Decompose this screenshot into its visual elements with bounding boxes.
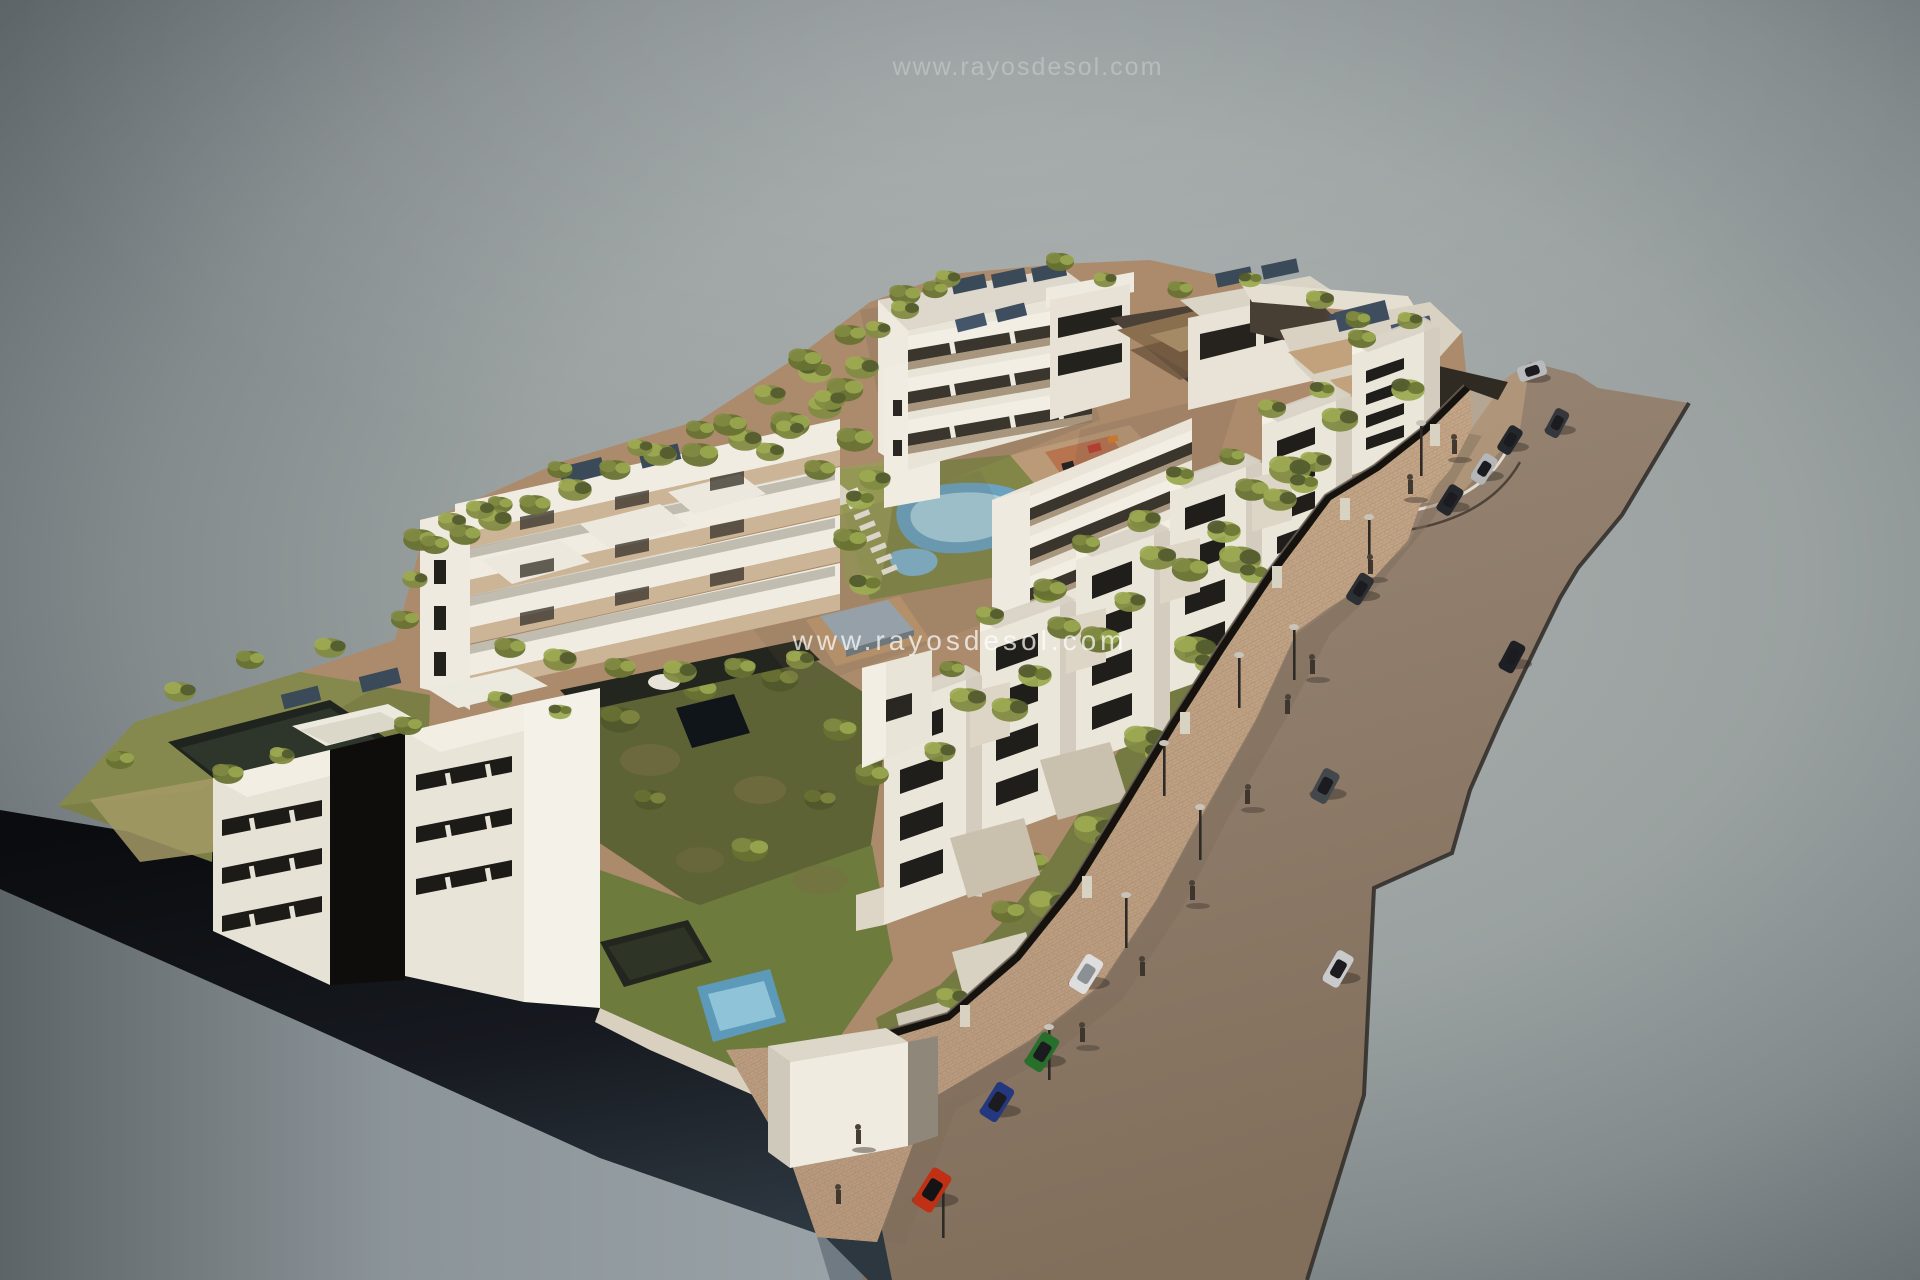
svg-text:www.rayosdesol.com: www.rayosdesol.com: [792, 625, 1128, 656]
svg-text:www.rayosdesol.com: www.rayosdesol.com: [892, 53, 1164, 81]
